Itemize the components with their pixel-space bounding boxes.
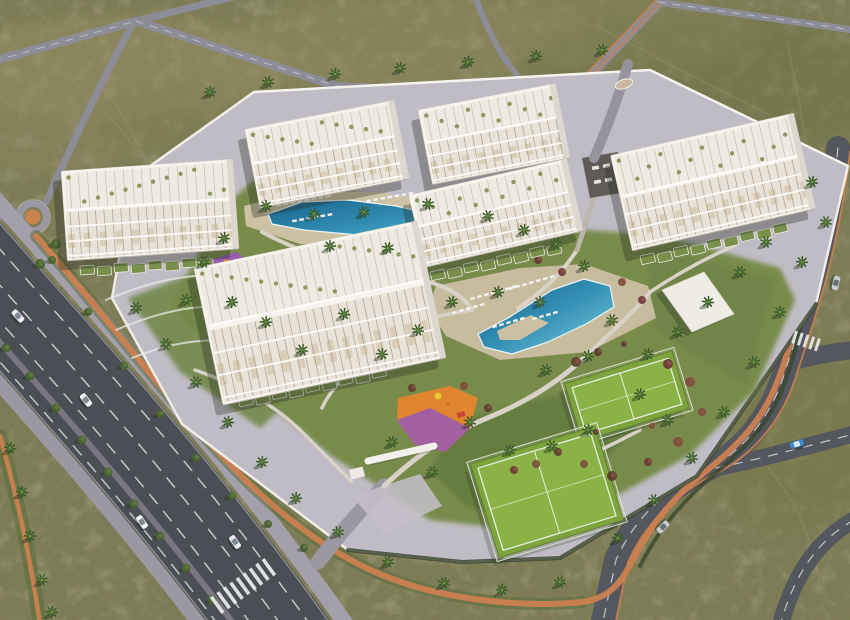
shrub bbox=[673, 437, 683, 447]
aerial-site-render bbox=[0, 0, 850, 620]
circle bbox=[26, 210, 41, 225]
path bbox=[790, 350, 850, 362]
shrub bbox=[685, 377, 695, 387]
shrub bbox=[644, 458, 652, 466]
viewport bbox=[0, 0, 850, 620]
shrub bbox=[593, 429, 599, 435]
shrub bbox=[698, 408, 706, 416]
shrub bbox=[510, 466, 518, 474]
shrub bbox=[663, 359, 673, 369]
shrub bbox=[532, 460, 540, 468]
apartment-building bbox=[52, 159, 239, 270]
shrub bbox=[408, 384, 416, 392]
circle bbox=[435, 393, 442, 400]
shrub bbox=[580, 460, 588, 468]
shrub bbox=[558, 268, 566, 276]
shrub bbox=[649, 423, 655, 429]
shrub bbox=[621, 341, 627, 347]
shrub bbox=[484, 404, 492, 412]
shrub bbox=[607, 471, 617, 481]
shrub bbox=[554, 448, 562, 456]
shrub bbox=[618, 278, 626, 286]
shrub bbox=[594, 348, 602, 356]
shrub bbox=[571, 357, 581, 367]
circle bbox=[446, 402, 450, 406]
shrub bbox=[460, 382, 468, 390]
shrub bbox=[638, 296, 646, 304]
